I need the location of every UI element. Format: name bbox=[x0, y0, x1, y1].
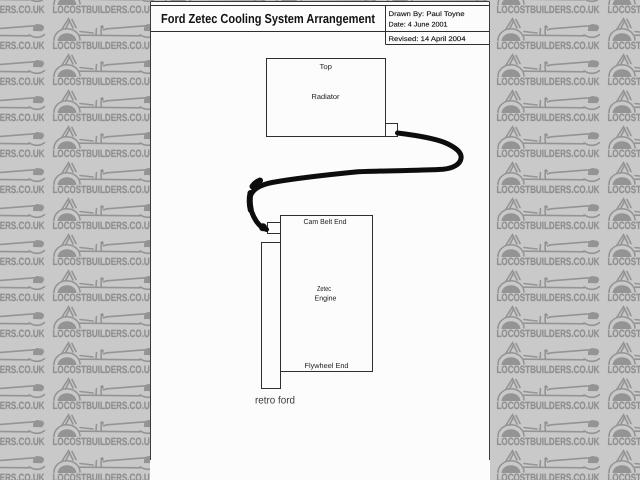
svg-text:Flywheel End: Flywheel End bbox=[305, 361, 349, 370]
svg-text:Top: Top bbox=[320, 62, 333, 71]
svg-text:Revised: 14 April 2004: Revised: 14 April 2004 bbox=[389, 36, 466, 43]
svg-text:Engine: Engine bbox=[315, 294, 337, 303]
svg-text:Ford Zetec Cooling System Arra: Ford Zetec Cooling System Arrangement bbox=[161, 11, 376, 26]
svg-text:Cam Belt End: Cam Belt End bbox=[304, 217, 347, 226]
svg-text:Zetec: Zetec bbox=[317, 284, 331, 293]
svg-text:Drawn By: Paul Toyne: Drawn By: Paul Toyne bbox=[389, 11, 465, 18]
svg-text:Radiator: Radiator bbox=[312, 92, 341, 101]
svg-text:retro ford: retro ford bbox=[255, 395, 295, 407]
svg-text:Date: 4 June 2001: Date: 4 June 2001 bbox=[389, 21, 448, 28]
